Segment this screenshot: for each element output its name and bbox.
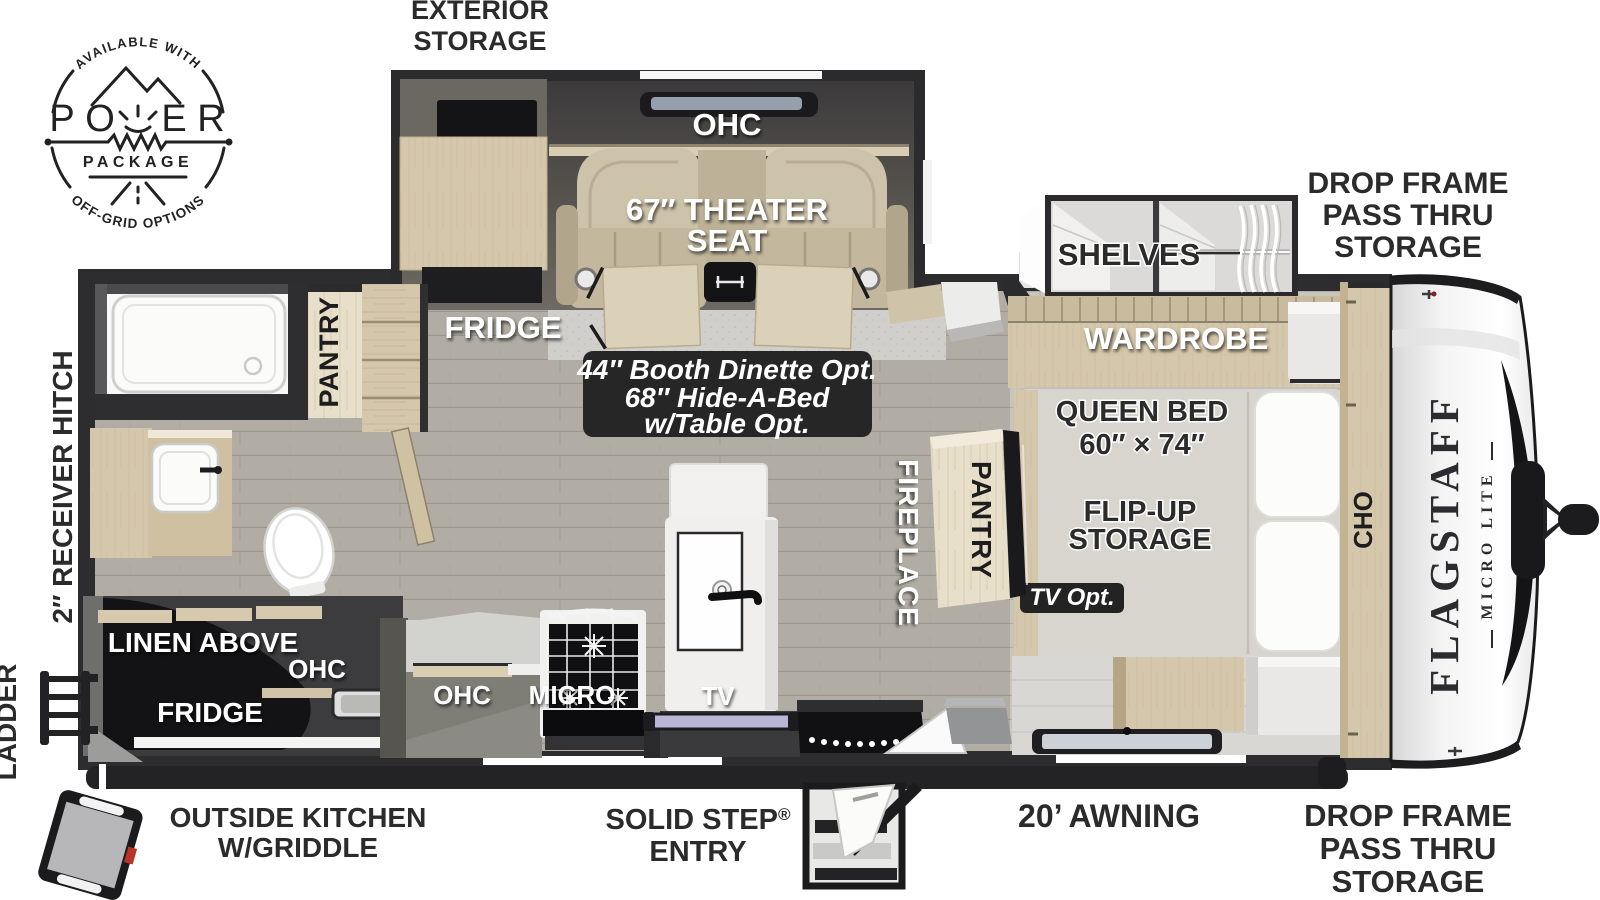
svg-text:E: E (161, 98, 186, 140)
svg-text:LADDER: LADDER (0, 664, 22, 781)
svg-text:w/Table Opt.: w/Table Opt. (644, 408, 809, 439)
svg-text:R: R (197, 98, 224, 140)
svg-text:FIREPLACE: FIREPLACE (893, 459, 924, 627)
svg-text:STORAGE: STORAGE (1069, 524, 1212, 556)
svg-text:OUTSIDE KITCHEN: OUTSIDE KITCHEN (170, 802, 427, 833)
svg-text:PACKAGE: PACKAGE (83, 154, 193, 171)
svg-text:LINEN ABOVE: LINEN ABOVE (108, 627, 298, 658)
svg-text:PANTRY: PANTRY (314, 297, 344, 408)
svg-text:QUEEN BED: QUEEN BED (1056, 396, 1228, 428)
svg-text:STORAGE: STORAGE (413, 26, 546, 56)
svg-text:67″ THEATER: 67″ THEATER (626, 192, 828, 227)
svg-text:SHELVES: SHELVES (1058, 237, 1200, 272)
svg-text:60″ × 74″: 60″ × 74″ (1079, 429, 1204, 461)
svg-text:PANTRY: PANTRY (966, 461, 997, 579)
svg-text:ENTRY: ENTRY (649, 836, 746, 868)
svg-text:DROP FRAME: DROP FRAME (1307, 167, 1508, 200)
svg-text:PASS THRU: PASS THRU (1320, 831, 1497, 866)
svg-text:OHC: OHC (433, 680, 491, 710)
svg-text:STORAGE: STORAGE (1334, 231, 1482, 264)
svg-text:SEAT: SEAT (687, 223, 767, 258)
svg-text:CHO: CHO (1348, 491, 1378, 549)
svg-text:O: O (85, 98, 115, 140)
svg-text:DROP FRAME: DROP FRAME (1304, 798, 1512, 833)
svg-text:EXTERIOR: EXTERIOR (411, 0, 549, 25)
svg-text:20’ AWNING: 20’ AWNING (1018, 798, 1200, 834)
svg-text:MICRO LITE: MICRO LITE (1479, 470, 1496, 619)
svg-text:P: P (49, 98, 74, 140)
svg-text:TV Opt.: TV Opt. (1029, 584, 1114, 611)
svg-text:W/GRIDDLE: W/GRIDDLE (218, 832, 378, 863)
svg-text:SOLID STEP®: SOLID STEP® (606, 804, 791, 836)
svg-text:OHC: OHC (288, 654, 346, 684)
svg-text:FLAGSTAFF: FLAGSTAFF (1421, 391, 1467, 695)
svg-text:44″ Booth Dinette Opt.: 44″ Booth Dinette Opt. (576, 354, 877, 385)
svg-text:WARDROBE: WARDROBE (1084, 321, 1268, 356)
svg-text:TV: TV (701, 681, 735, 711)
svg-text:STORAGE: STORAGE (1332, 864, 1485, 899)
svg-text:FRIDGE: FRIDGE (157, 697, 263, 728)
svg-text:MICRO: MICRO (529, 680, 616, 710)
svg-text:2″ RECEIVER HITCH: 2″ RECEIVER HITCH (47, 350, 78, 623)
svg-text:FRIDGE: FRIDGE (444, 310, 561, 345)
svg-text:PASS THRU: PASS THRU (1322, 199, 1493, 232)
svg-text:OHC: OHC (693, 107, 762, 142)
